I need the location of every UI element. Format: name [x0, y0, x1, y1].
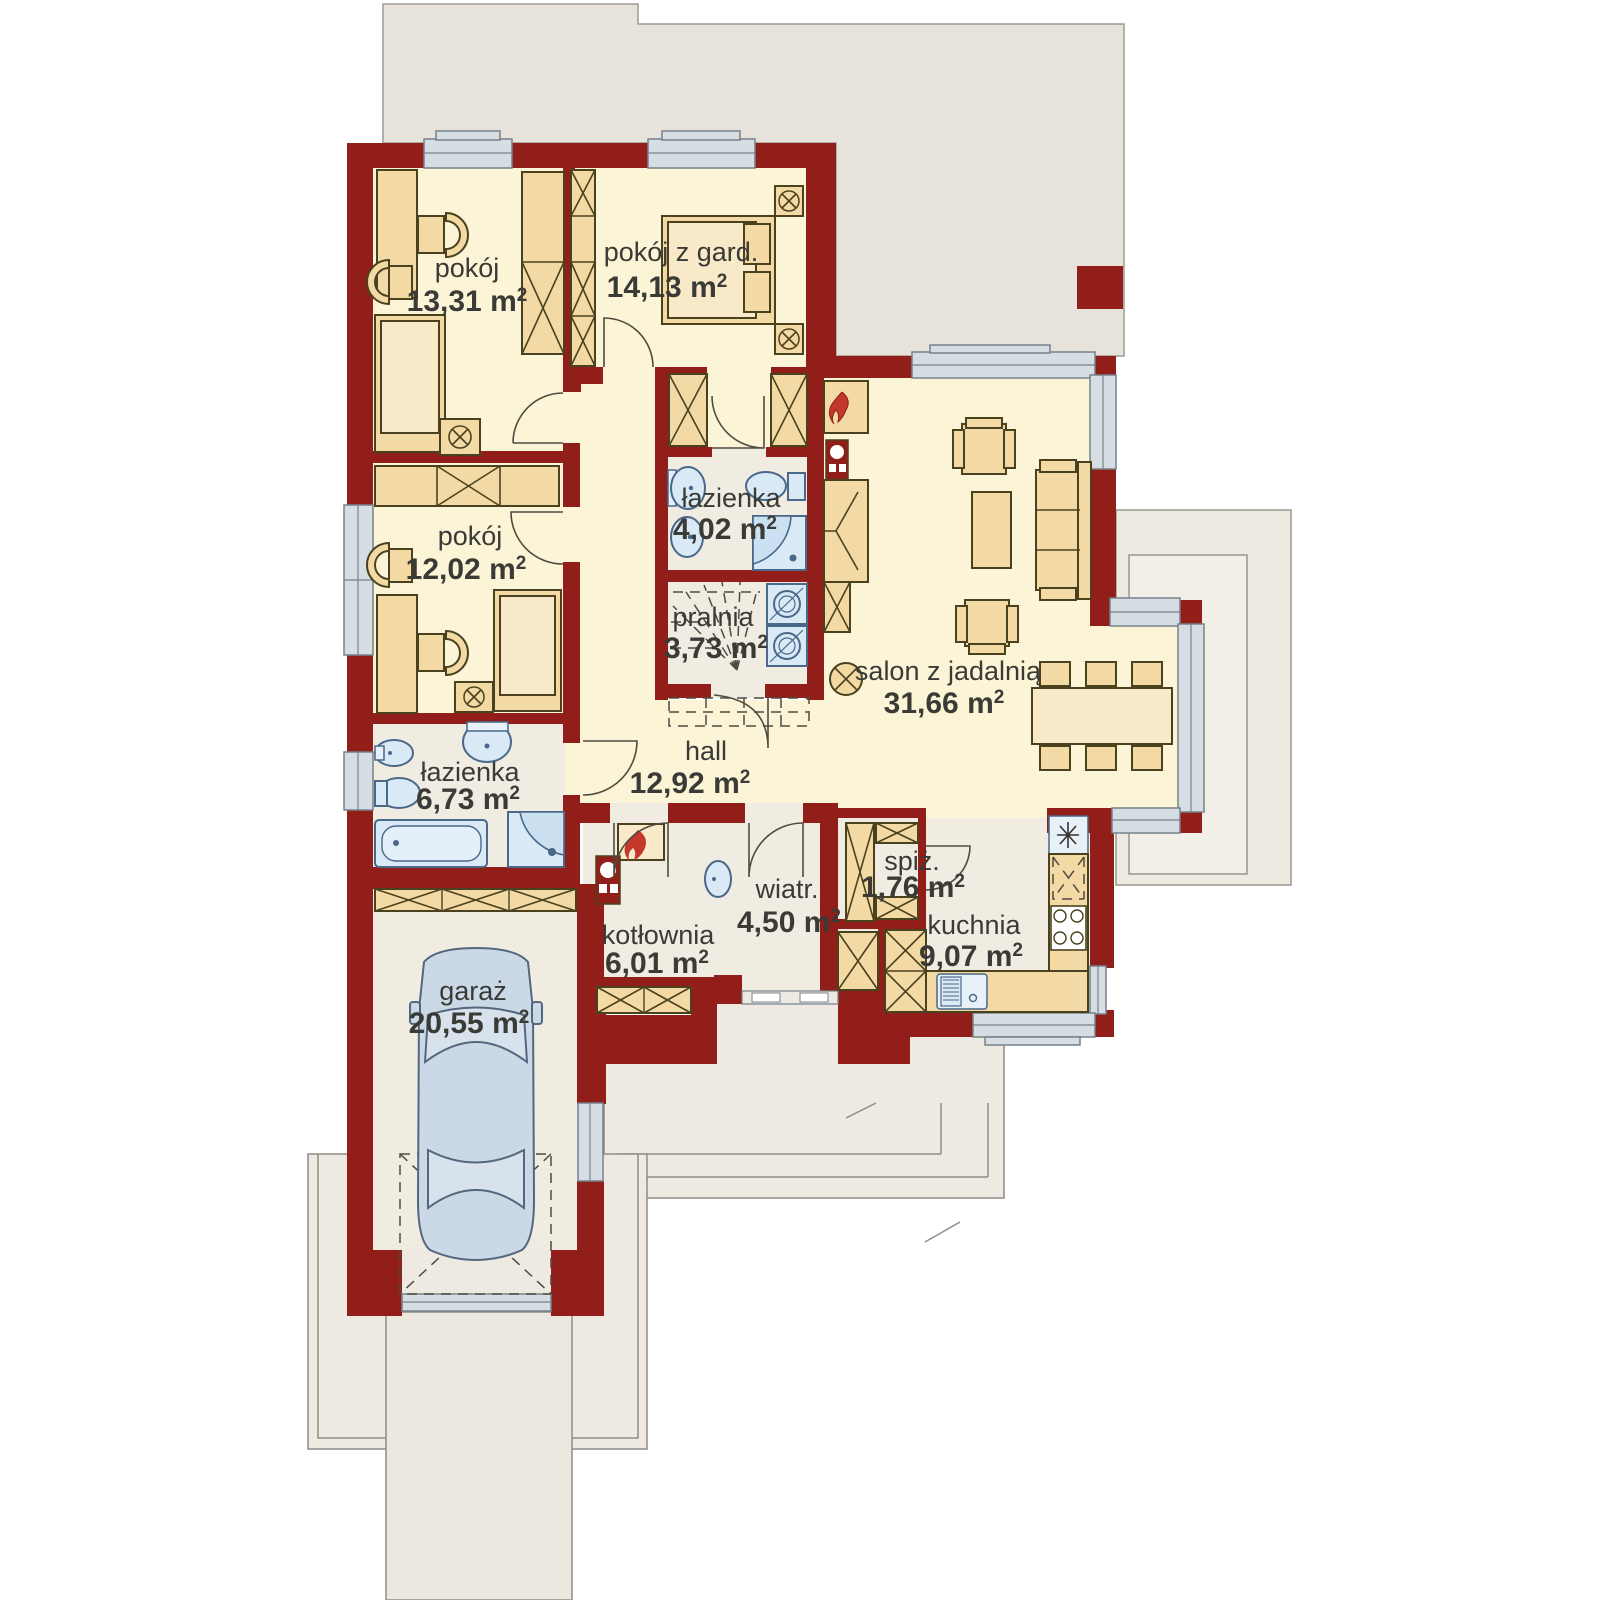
svg-text:kuchnia: kuchnia — [927, 910, 1021, 940]
svg-text:3,73 m2: 3,73 m2 — [664, 632, 768, 665]
svg-text:31,66 m2: 31,66 m2 — [884, 687, 1005, 720]
svg-text:wiatr.: wiatr. — [754, 874, 818, 904]
svg-text:4,50 m2: 4,50 m2 — [737, 906, 841, 939]
svg-text:hall: hall — [685, 736, 727, 766]
svg-text:4,02 m2: 4,02 m2 — [673, 513, 777, 546]
svg-text:13,31 m2: 13,31 m2 — [407, 285, 528, 318]
svg-text:pokój: pokój — [438, 521, 503, 551]
svg-text:kotłownia: kotłownia — [602, 920, 716, 950]
svg-text:9,07 m2: 9,07 m2 — [919, 940, 1023, 973]
svg-text:20,55 m2: 20,55 m2 — [409, 1007, 530, 1040]
svg-text:łazienka: łazienka — [681, 483, 781, 513]
svg-text:salon z jadalnią: salon z jadalnią — [855, 656, 1042, 686]
svg-text:6,01 m2: 6,01 m2 — [605, 947, 709, 980]
svg-text:12,02 m2: 12,02 m2 — [406, 553, 527, 586]
svg-text:pokój: pokój — [435, 253, 500, 283]
svg-text:6,73 m2: 6,73 m2 — [416, 783, 520, 816]
svg-text:1,76 m2: 1,76 m2 — [861, 871, 965, 904]
svg-text:pralnia: pralnia — [672, 602, 754, 632]
svg-text:garaż: garaż — [439, 976, 507, 1006]
svg-text:12,92 m2: 12,92 m2 — [630, 767, 751, 800]
svg-text:14,13 m2: 14,13 m2 — [607, 271, 728, 304]
svg-text:pokój z gard.: pokój z gard. — [604, 237, 759, 267]
